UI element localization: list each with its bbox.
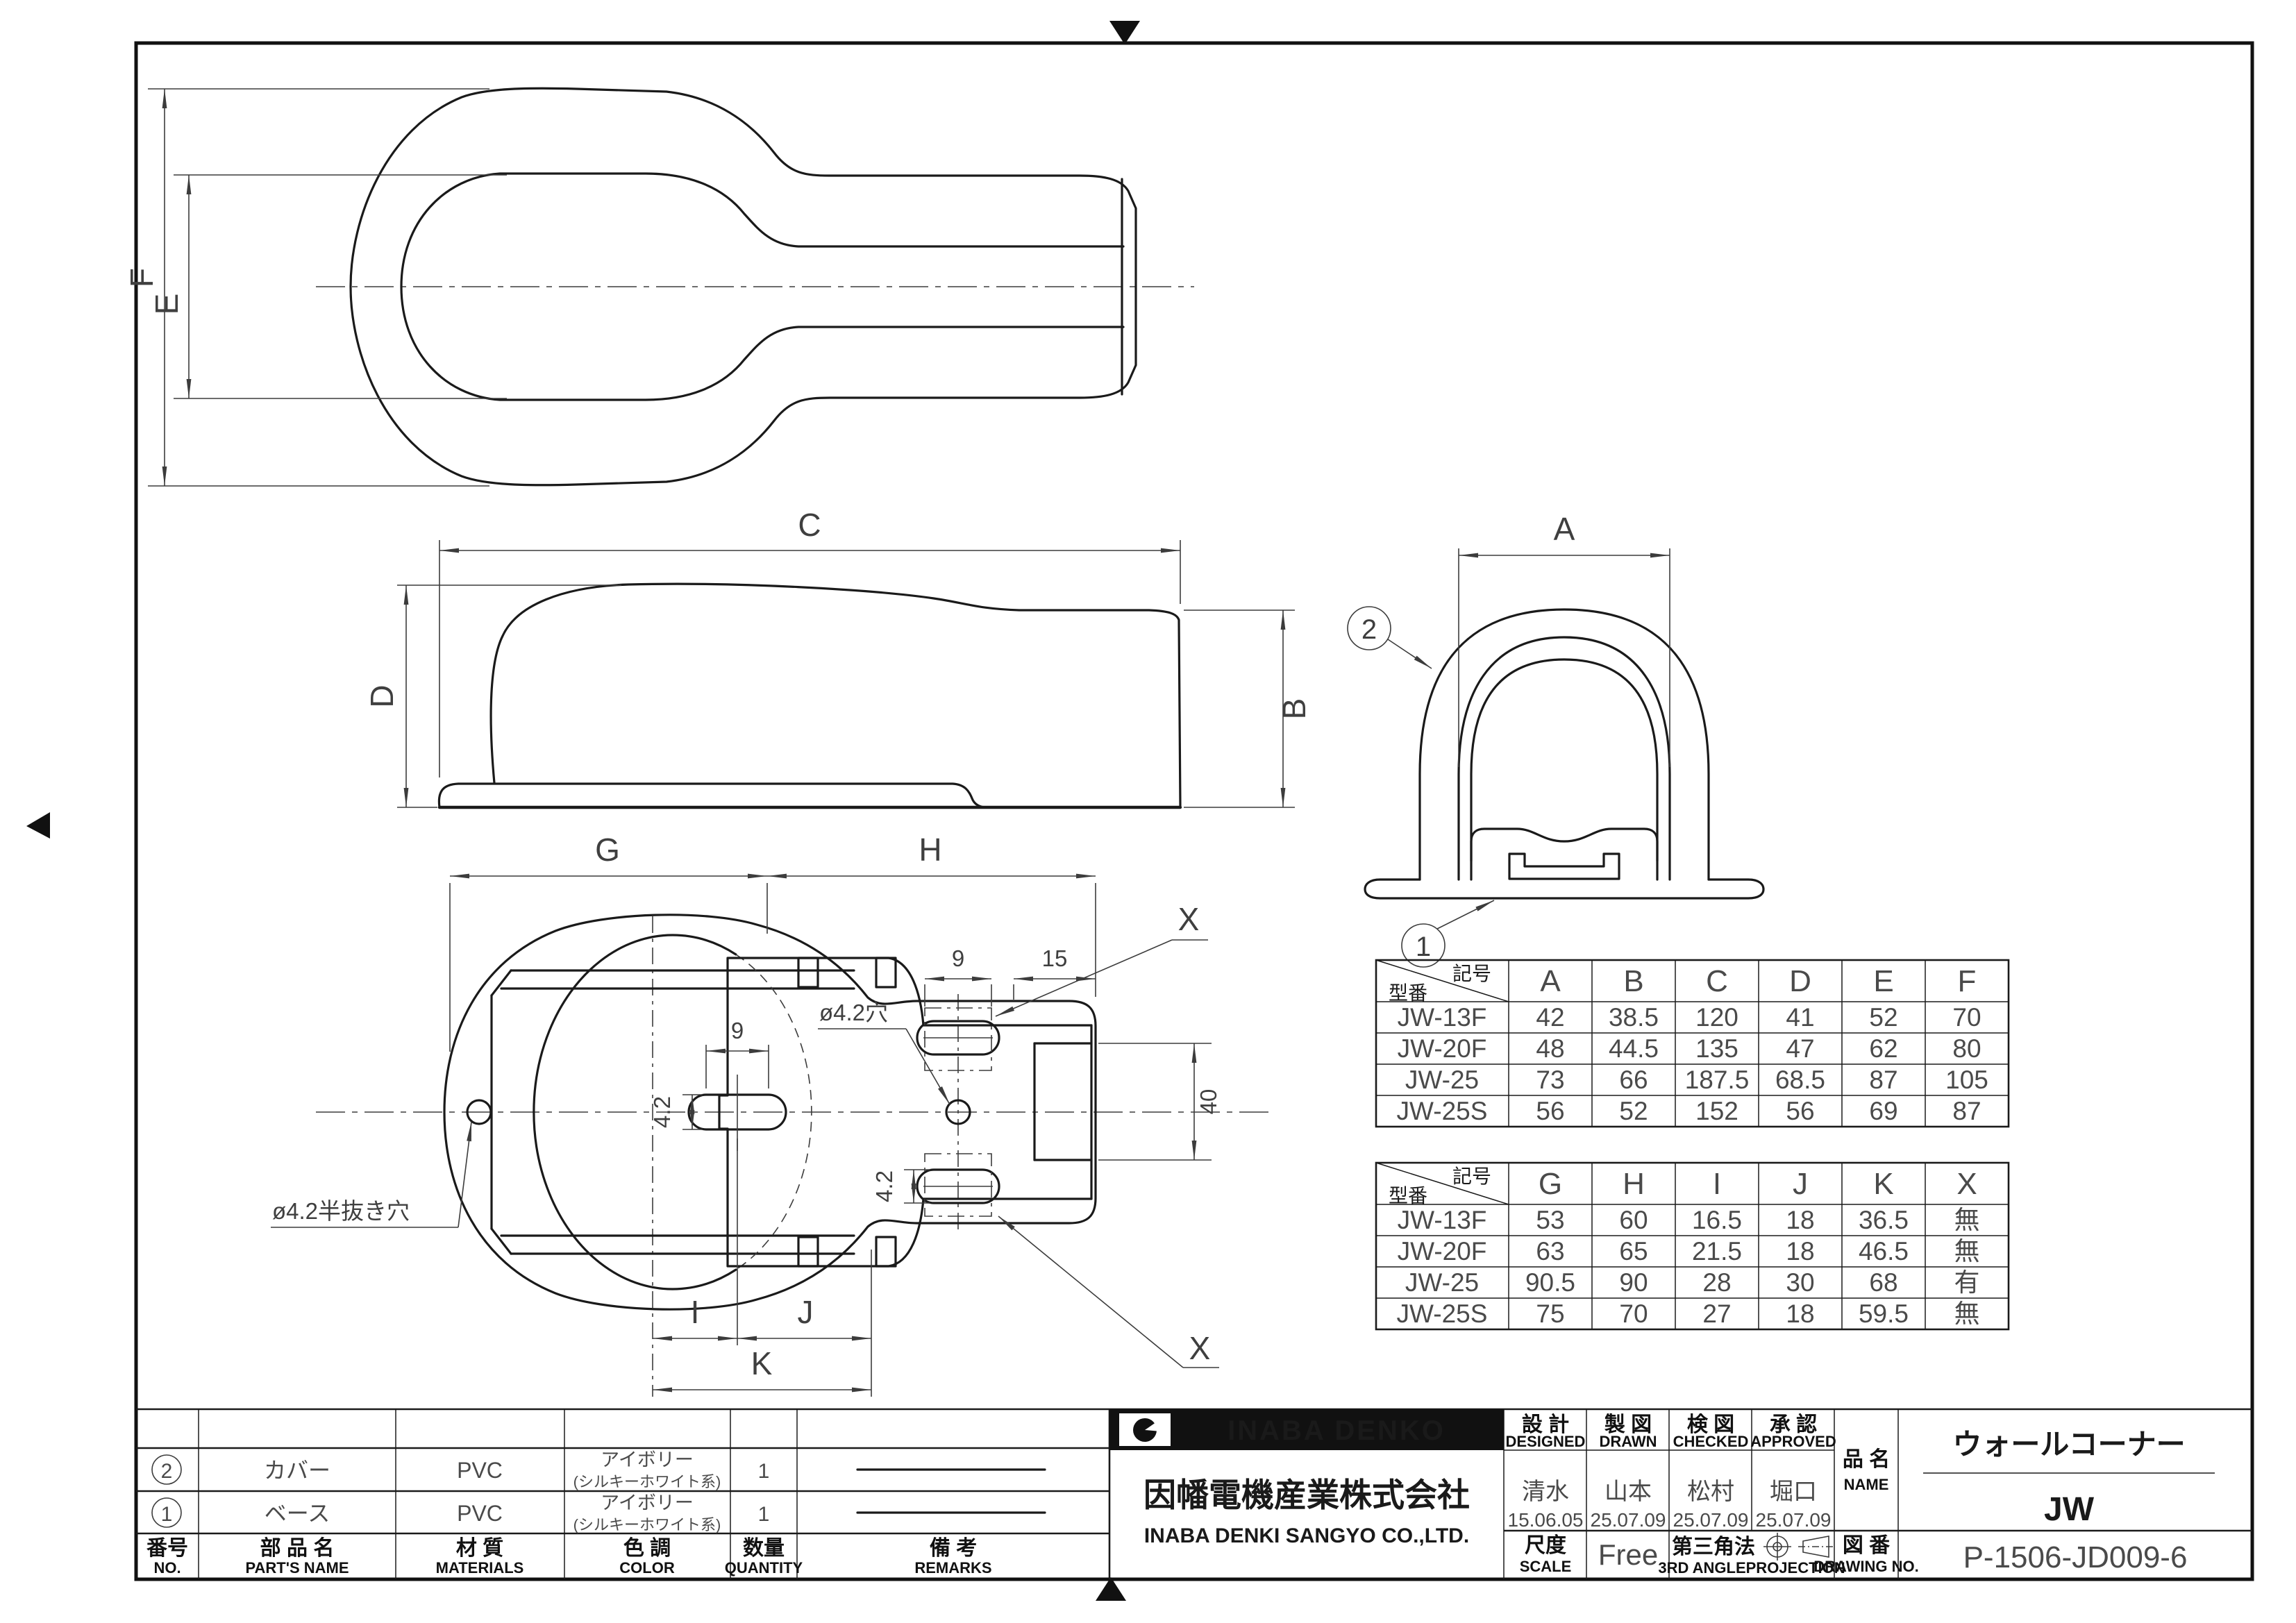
border-frame: [26, 21, 2252, 1601]
hdr-qty-jp: 数量: [743, 1537, 785, 1560]
front-view-base-top: [1471, 829, 1657, 861]
t2-col-I: I: [1713, 1167, 1721, 1201]
projection-label-jp: 第三角法: [1672, 1535, 1755, 1558]
dim-label-B: B: [1276, 698, 1312, 720]
dim-label-D: D: [364, 684, 400, 707]
t1-cell: 44.5: [1609, 1034, 1659, 1063]
hdr-qty-en: QUANTITY: [725, 1559, 803, 1576]
dim-label-H: H: [919, 832, 941, 868]
dim-label-A: A: [1554, 511, 1575, 547]
t2-cell: 65: [1619, 1237, 1648, 1265]
front-view-outer-arch: [1420, 609, 1709, 880]
t1-row-4: JW-25S 56 52 152 56 69 87: [1397, 1097, 1981, 1125]
hdr-no-en: NO.: [153, 1559, 181, 1576]
dim-label-9-x: 9: [952, 945, 964, 971]
dim-label-C: C: [798, 507, 821, 543]
dim-label-X-top: X: [1178, 901, 1200, 937]
note-half-punched-hole: ø4.2半抜き穴: [272, 1198, 410, 1224]
dim-label-F: F: [124, 268, 160, 287]
t1-cell: 48: [1536, 1034, 1564, 1063]
hdr-no-jp: 番号: [146, 1537, 188, 1560]
t2-cell: 30: [1786, 1268, 1814, 1297]
name-label-jp: 品 名: [1843, 1448, 1890, 1471]
plate-tab: [798, 958, 818, 987]
t2-cell: 18: [1786, 1206, 1814, 1234]
t1-cell: 47: [1786, 1034, 1814, 1063]
t2-cell: 75: [1536, 1300, 1564, 1328]
balloon-1-label: 1: [1416, 932, 1431, 962]
front-view: A 2 1: [1348, 511, 1763, 967]
t1-cell: 42: [1536, 1003, 1564, 1032]
dim-label-4-2-b: 4.2: [871, 1170, 897, 1202]
side-view-base-plate: [439, 784, 984, 807]
t2-cell: 21.5: [1692, 1237, 1742, 1265]
t2-cell: 有: [1954, 1268, 1980, 1297]
t2-row-3: JW-25 90.5 90 28 30 68 有: [1405, 1268, 1980, 1297]
t1-cell: 41: [1786, 1003, 1814, 1032]
t2-corner-bottom: 型番: [1389, 1185, 1427, 1206]
checked-date: 25.07.09: [1673, 1509, 1749, 1531]
t2-cell: 63: [1536, 1237, 1564, 1265]
t2-cell: 36.5: [1859, 1206, 1909, 1234]
part-1-name: ベース: [265, 1501, 330, 1526]
t1-cell: 152: [1695, 1097, 1738, 1125]
dim-label-J: J: [798, 1294, 814, 1330]
company-name-jp: 因幡電機産業株式会社: [1143, 1477, 1470, 1513]
dim-label-4-2-a: 4.2: [649, 1096, 675, 1128]
hdr-color-jp: 色 調: [623, 1537, 671, 1560]
t2-col-X: X: [1956, 1167, 1977, 1201]
t2-model: JW-25S: [1397, 1300, 1488, 1328]
front-view-flange: [1365, 880, 1763, 898]
t1-cell: 52: [1619, 1097, 1648, 1125]
hdr-material-jp: 材 質: [456, 1537, 503, 1560]
parts-row-cover: 2 カバー PVC アイボリー (シルキーホワイト系) 1: [152, 1449, 1045, 1490]
designed-date: 15.06.05: [1508, 1509, 1584, 1531]
part-2-no: 2: [161, 1460, 173, 1483]
t1-cell: 135: [1695, 1034, 1738, 1063]
t2-col-K: K: [1873, 1167, 1893, 1201]
t2-model: JW-20F: [1398, 1237, 1487, 1265]
scale-value: Free: [1598, 1538, 1658, 1571]
product-name-block: 品 名 NAME ウォールコーナー JW 図 番 DRAWING NO. P-1…: [1813, 1428, 2215, 1575]
part-2-color: アイボリー: [601, 1449, 694, 1470]
t2-cell: 27: [1702, 1300, 1731, 1328]
t1-cell: 52: [1869, 1003, 1897, 1032]
scale-label-en: SCALE: [1520, 1558, 1572, 1575]
checked-person: 松村: [1687, 1479, 1734, 1505]
t2-cell: 28: [1702, 1268, 1731, 1297]
t1-cell: 38.5: [1609, 1003, 1659, 1032]
t2-corner-top: 記号: [1452, 1166, 1491, 1187]
dim-label-9-slot: 9: [731, 1018, 744, 1043]
hdr-color-en: COLOR: [619, 1559, 675, 1576]
hdr-name-jp: 部 品 名: [260, 1536, 335, 1560]
t2-cell: 16.5: [1692, 1206, 1742, 1234]
t2-cell: 18: [1786, 1237, 1814, 1265]
part-1-no: 1: [161, 1503, 173, 1526]
dim-label-I: I: [691, 1294, 700, 1330]
t2-cell: 46.5: [1859, 1237, 1909, 1265]
dim-label-40: 40: [1196, 1089, 1221, 1115]
title-block: INABA DENKO 因幡電機産業株式会社 INABA DENKI SANGY…: [1109, 1409, 2252, 1579]
name-label-en: NAME: [1844, 1476, 1889, 1493]
part-2-material: PVC: [457, 1458, 503, 1483]
dim-label-15: 15: [1042, 945, 1068, 971]
t2-cell: 53: [1536, 1206, 1564, 1234]
part-1-material: PVC: [457, 1501, 503, 1526]
dim-label-G: G: [595, 832, 620, 868]
company-name-en: INABA DENKI SANGYO CO.,LTD.: [1144, 1524, 1469, 1547]
dim-label-X-bottom: X: [1189, 1330, 1211, 1366]
drawing-no-label-jp: 図 番: [1843, 1534, 1891, 1557]
plate-tab: [876, 958, 896, 987]
side-view: C D B: [364, 507, 1312, 807]
hdr-material-en: MATERIALS: [436, 1559, 524, 1576]
t1-col-C: C: [1706, 964, 1728, 998]
front-view-cover-inner-arc-1: [1459, 637, 1670, 880]
t1-cell: 87: [1952, 1097, 1981, 1125]
t1-col-E: E: [1873, 964, 1893, 998]
checked-label-en: CHECKED: [1673, 1433, 1749, 1450]
part-1-qty: 1: [758, 1503, 770, 1526]
dimension-table-2: 記号 型番 G H I J K X JW-13F 53 60 16.5 18 3…: [1376, 1163, 2009, 1329]
t1-col-B: B: [1623, 964, 1643, 998]
front-view-base-channel: [1509, 854, 1619, 879]
approved-label-en: APPROVED: [1750, 1433, 1836, 1450]
part-1-color-sub: (シルキーホワイト系): [573, 1516, 721, 1533]
t1-cell: 87: [1869, 1066, 1897, 1094]
t1-cell: 73: [1536, 1066, 1564, 1094]
t2-cell: 無: [1954, 1300, 1980, 1328]
t1-cell: 69: [1869, 1097, 1897, 1125]
scale-label-jp: 尺度: [1525, 1534, 1566, 1557]
t1-cell: 56: [1536, 1097, 1564, 1125]
t1-row-1: JW-13F 42 38.5 120 41 52 70: [1398, 1003, 1981, 1032]
t1-col-F: F: [1958, 964, 1977, 998]
t2-model: JW-25: [1405, 1268, 1479, 1297]
brand-text: INABA DENKO: [1227, 1415, 1446, 1446]
part-2-qty: 1: [758, 1460, 770, 1483]
t2-row-2: JW-20F 63 65 21.5 18 46.5 無: [1398, 1237, 1980, 1265]
t1-col-D: D: [1789, 964, 1811, 998]
t2-cell: 90: [1619, 1268, 1648, 1297]
drawing-sheet: F E C D B A: [0, 0, 2296, 1623]
dimension-table-1: 記号 型番 A B C D E F JW-13F 42 38.5 120 41 …: [1376, 960, 2009, 1127]
balloon-2-label: 2: [1361, 614, 1377, 645]
part-2-name: カバー: [264, 1458, 330, 1483]
front-view-cover-inner-arc-2: [1471, 659, 1657, 880]
t1-cell: 120: [1695, 1003, 1738, 1032]
approved-date: 25.07.09: [1756, 1509, 1832, 1531]
part-2-color-sub: (シルキーホワイト系): [573, 1473, 721, 1490]
parts-table: 2 カバー PVC アイボリー (シルキーホワイト系) 1 1 ベース PVC …: [136, 1409, 1109, 1579]
t2-row-1: JW-13F 53 60 16.5 18 36.5 無: [1398, 1206, 1980, 1234]
t2-cell: 無: [1954, 1206, 1980, 1234]
approved-person: 堀口: [1770, 1479, 1817, 1505]
t1-model: JW-20F: [1398, 1034, 1487, 1063]
top-view: F E: [124, 88, 1194, 486]
t2-col-G: G: [1539, 1167, 1562, 1201]
t2-cell: 18: [1786, 1300, 1814, 1328]
t1-cell: 66: [1619, 1066, 1648, 1094]
t2-cell: 90.5: [1525, 1268, 1575, 1297]
bottom-view: ø4.2半抜き穴 ø4.2穴 G H 9 15 9 4.2 4.2: [271, 832, 1271, 1397]
t1-cell: 70: [1952, 1003, 1981, 1032]
t2-cell: 59.5: [1859, 1300, 1909, 1328]
t1-cell: 80: [1952, 1034, 1981, 1063]
t1-col-A: A: [1540, 964, 1561, 998]
dim-label-E: E: [149, 294, 185, 315]
hdr-name-en: PART'S NAME: [245, 1559, 349, 1576]
plate-tab: [798, 1237, 818, 1266]
plate-tab: [876, 1237, 896, 1266]
t2-cell: 無: [1954, 1237, 1980, 1265]
t1-cell: 68.5: [1775, 1066, 1825, 1094]
designed-person: 清水: [1522, 1479, 1569, 1505]
side-view-cover-profile: [491, 584, 1180, 807]
dim-label-K: K: [751, 1345, 773, 1381]
t1-corner-top: 記号: [1452, 963, 1491, 984]
part-1-color: アイボリー: [601, 1492, 694, 1513]
t1-cell: 187.5: [1685, 1066, 1750, 1094]
drawing-canvas: F E C D B A: [0, 0, 2296, 1623]
t1-cell: 56: [1786, 1097, 1814, 1125]
signature-columns: 設 計 DESIGNED 清水 15.06.05 製 図 DRAWN 山本 25…: [1506, 1413, 1836, 1531]
t1-row-3: JW-25 73 66 187.5 68.5 87 105: [1405, 1066, 1988, 1094]
t1-cell: 105: [1945, 1066, 1988, 1094]
t2-model: JW-13F: [1398, 1206, 1487, 1234]
drawn-date: 25.07.09: [1591, 1509, 1666, 1531]
t2-cell: 60: [1619, 1206, 1648, 1234]
drawing-no-value: P-1506-JD009-6: [1963, 1540, 2188, 1574]
t1-corner-bottom: 型番: [1389, 982, 1427, 1004]
t2-col-H: H: [1623, 1167, 1645, 1201]
parts-row-base: 1 ベース PVC アイボリー (シルキーホワイト系) 1: [152, 1492, 1045, 1533]
scale-projection-row: 尺度 SCALE Free 第三角法 3RD ANGLEPROJECTION: [1520, 1533, 1845, 1576]
t2-cell: 70: [1619, 1300, 1648, 1328]
drawn-person: 山本: [1604, 1479, 1652, 1505]
center-mark-top-icon: [1109, 21, 1140, 44]
hdr-remarks-en: REMARKS: [914, 1559, 991, 1576]
hdr-remarks-jp: 備 考: [930, 1537, 977, 1560]
t1-cell: 62: [1869, 1034, 1897, 1063]
designed-label-en: DESIGNED: [1506, 1433, 1586, 1450]
t1-model: JW-13F: [1398, 1003, 1487, 1032]
t1-model: JW-25: [1405, 1066, 1479, 1094]
t1-model: JW-25S: [1397, 1097, 1488, 1125]
center-mark-left-icon: [26, 812, 50, 839]
t1-row-2: JW-20F 48 44.5 135 47 62 80: [1398, 1034, 1981, 1063]
note-hole: ø4.2穴: [819, 1000, 888, 1025]
t2-row-4: JW-25S 75 70 27 18 59.5 無: [1397, 1300, 1980, 1328]
product-name: ウォールコーナー: [1952, 1428, 2185, 1461]
parts-table-header: 番号 NO. 部 品 名 PART'S NAME 材 質 MATERIALS 色…: [146, 1536, 992, 1576]
drawn-label-en: DRAWN: [1599, 1433, 1657, 1450]
t2-col-J: J: [1793, 1167, 1808, 1201]
product-code: JW: [2044, 1491, 2095, 1528]
drawing-no-label-en: DRAWING NO.: [1813, 1558, 1919, 1575]
third-angle-symbol-icon: [1763, 1533, 1834, 1561]
t2-cell: 68: [1869, 1268, 1897, 1297]
